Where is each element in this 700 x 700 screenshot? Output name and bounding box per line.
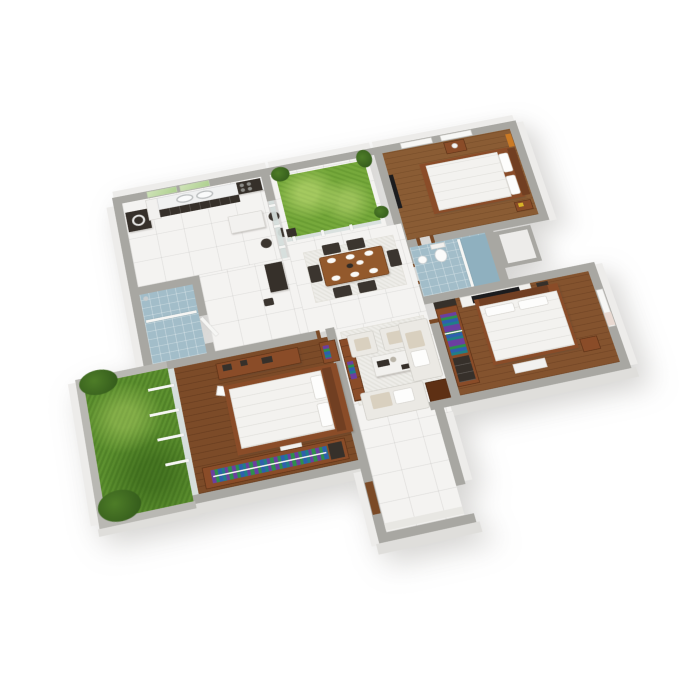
floor-plan-render <box>0 0 700 700</box>
isometric-plan <box>39 107 693 626</box>
